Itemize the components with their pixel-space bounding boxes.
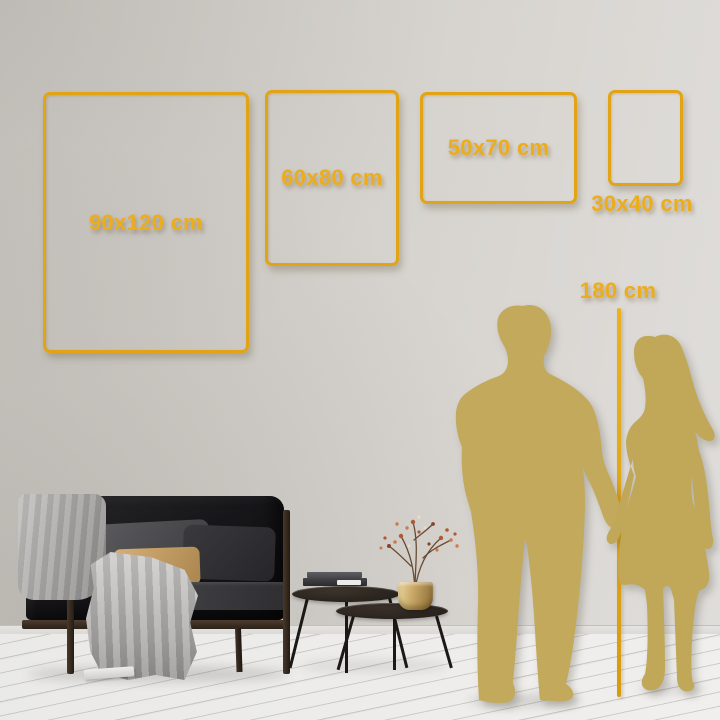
size-frame-60x80: 60x80 cm [265, 90, 399, 266]
book-stack [307, 572, 362, 578]
size-frame-90x120: 90x120 cm [43, 92, 249, 353]
height-ruler-line [617, 308, 621, 697]
woman-floor-shadow [638, 684, 706, 693]
brass-vase [398, 582, 433, 610]
dried-branch [367, 506, 477, 590]
size-label-60x80: 60x80 cm [281, 165, 383, 191]
white-book [337, 580, 361, 585]
blanket-over-armrest [18, 494, 106, 600]
blanket-cascade [86, 552, 198, 680]
size-frame-50x70: 50x70 cm [420, 92, 577, 204]
size-label-90x120: 90x120 cm [89, 210, 203, 236]
branch-blossoms [380, 515, 459, 551]
size-guide-scene: 90x120 cm 60x80 cm 50x70 cm 30x40 cm 180… [0, 0, 720, 720]
height-reference-label: 180 cm [567, 278, 669, 304]
table-leg [393, 618, 396, 670]
sofa-leg [235, 628, 243, 672]
sofa-wood-post-right [283, 510, 290, 674]
sofa [18, 490, 294, 685]
table-floor-shadow [300, 660, 448, 672]
size-label-30x40: 30x40 cm [582, 191, 702, 217]
man-floor-shadow [468, 695, 580, 706]
coffee-table-right [336, 603, 448, 619]
size-label-50x70: 50x70 cm [448, 135, 550, 161]
size-frame-30x40 [608, 90, 683, 186]
